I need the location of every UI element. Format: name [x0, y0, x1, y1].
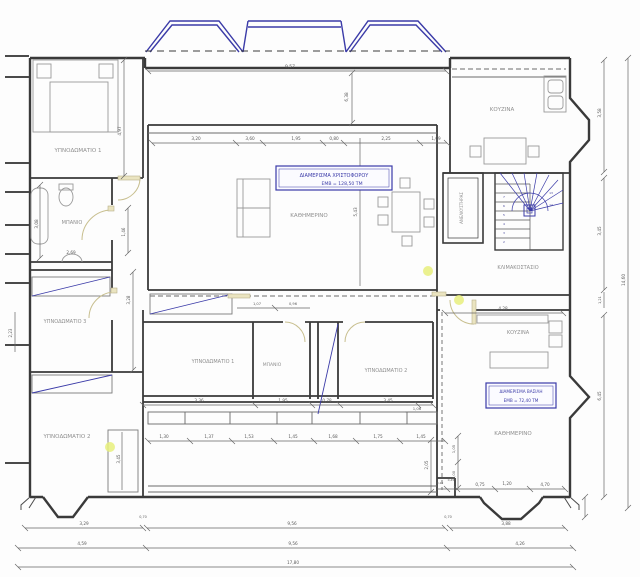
dim-row-mid2-2: 1,53: [244, 434, 254, 439]
interior-walls: [30, 58, 570, 497]
kitchen-top-table: [470, 138, 539, 164]
apartment2-name: ΔΙΑΜΕΡΙΣΜΑ ΒΑΣΙΛΗ: [499, 389, 542, 394]
dim-br-tiny-b: 0,45: [448, 478, 455, 482]
dim-right-small: 1,21: [598, 296, 602, 304]
canopy-middle: [243, 21, 346, 52]
label-bathroom-left: ΜΠΑΝΙΟ: [62, 220, 83, 226]
dim-row-mid2-1: 1,37: [204, 434, 214, 439]
label-bedroom3-left: ΥΠΝΟΔΩΜΑΤΙΟ 3: [43, 319, 87, 325]
left-wall-stubs: [5, 56, 29, 463]
dim-mid-top-a: 1,07: [253, 302, 261, 306]
dim-row-a-4: 3,88: [501, 521, 511, 526]
secondary-lines: [148, 69, 566, 492]
dim-row-mid-1: 1,95: [278, 398, 288, 403]
stair-fan: [500, 173, 563, 216]
label-bedroom1-left: ΥΠΝΟΔΩΜΑΤΙΟ 1: [54, 148, 102, 154]
dim-row-br-1: 1,20: [502, 481, 512, 486]
dim-row-mid2-6: 1,45: [416, 434, 426, 439]
dim-row-mid2-3: 1,45: [288, 434, 298, 439]
dim-right-stair-h: 3,45: [597, 226, 602, 236]
staircase: [495, 173, 563, 250]
floor-plan-drawing: ΥΠΝΟΔΩΜΑΤΙΟ 1 ΜΠΑΝΙΟ ΥΠΝΟΔΩΜΑΤΙΟ 3 ΥΠΝΟΔ…: [0, 0, 640, 577]
apartment-box-1: ΔΙΑΜΕΡΙΣΜΑ ΧΡΙΣΤΟΦΟΡΟΥ ΕΜΒ = 128,50 ΤΜ: [276, 166, 392, 190]
apartment-box-2: ΔΙΑΜΕΡΙΣΜΑ ΒΑΣΙΛΗ ΕΜΒ = 72,40 ΤΜ: [486, 383, 556, 408]
dim-v105: 1,05: [451, 444, 456, 453]
dim-corridor-h: 3,28: [126, 295, 131, 304]
label-bedroom1-mid: ΥΠΝΟΔΩΜΑΤΙΟ 1: [191, 359, 235, 365]
apartment1-area: ΕΜΒ = 128,50 ΤΜ: [321, 181, 362, 187]
step-num-6: 13: [549, 191, 553, 195]
label-living-right: ΚΑΘΗΜΕΡΙΝΟ: [494, 431, 532, 437]
label-kitchen-top: ΚΟΥΖΙΝΑ: [490, 107, 515, 113]
apartment2-area: ΕΜΒ = 72,40 ΤΜ: [504, 398, 539, 403]
kitchen-top-sink: [544, 76, 566, 112]
dim-right-kitchen-h: 3,58: [597, 108, 602, 118]
dim-row-mid-3: 3,45: [383, 398, 393, 403]
step-num-0: 2: [503, 240, 505, 244]
sofa: [237, 179, 270, 237]
corner-ornaments: [21, 497, 579, 510]
step-num-3: 5: [503, 213, 505, 217]
dim-corridor-w: 1,46: [121, 227, 126, 236]
step-num-4: 6: [503, 204, 505, 208]
dim-top-width: 9,57: [285, 64, 295, 70]
step-num-7: 14: [549, 203, 553, 207]
label-living-main: ΚΑΘΗΜΕΡΙΝΟ: [290, 213, 328, 219]
balcony-canopies: [146, 21, 446, 52]
dim-br-tiny-a: 0,10: [437, 481, 444, 485]
door-arc-bedroom2-mid: [345, 322, 365, 342]
dim-veranda-h: 6,38: [344, 92, 349, 102]
bathtub: [31, 188, 48, 244]
dim-bed1-h: 4,97: [117, 126, 122, 136]
apartment1-name: ΔΙΑΜΕΡΙΣΜΑ ΧΡΙΣΤΟΦΟΡΟΥ: [300, 173, 370, 179]
dim-row-mid-2: 0,78: [322, 398, 332, 403]
toilet: [59, 184, 73, 206]
dim-row-b-2: 4,26: [515, 541, 525, 546]
door-arc-bathroom-mid: [285, 322, 305, 342]
bed: [33, 60, 118, 132]
label-bathroom-mid: ΜΠΑΝΙΟ: [263, 362, 282, 368]
label-bedroom2-mid: ΥΠΝΟΔΩΜΑΤΙΟ 2: [364, 368, 408, 374]
dimension-texts: 9,57 6,38 4,97 3,20 3,60 1,95 0,80 2,25 …: [8, 64, 626, 565]
dim-row-a-1: 0,70: [139, 515, 147, 519]
dim-bath-left-w: 2,69: [66, 250, 76, 255]
dim-row-mid2-5: 1,75: [373, 434, 383, 439]
dim-mid-top-b: 0,96: [289, 302, 298, 306]
doors: [82, 178, 474, 342]
dim-step-h: 2,05: [424, 460, 429, 469]
wardrobe: [108, 430, 138, 492]
dim-row-mid2-0: 1,30: [159, 434, 169, 439]
door-arc-bedroom1-left: [118, 178, 140, 200]
dim-row-br-0: 0,75: [475, 482, 485, 487]
dim-row-mid2-4: 1,68: [328, 434, 338, 439]
step-num-1: 3: [503, 231, 505, 235]
dim-bed3-h: 2,23: [8, 328, 13, 337]
step-num-2: 4: [503, 222, 505, 226]
dim-row-a-0: 3,29: [79, 521, 89, 526]
dim-row-top-4: 2,25: [381, 136, 391, 141]
dim-kitchen-right-w: 4,28: [498, 306, 508, 311]
kitchen-right-counter: [477, 315, 562, 368]
floor-plan-sheet: ΥΠΝΟΔΩΜΑΤΙΟ 1 ΜΠΑΝΙΟ ΥΠΝΟΔΩΜΑΤΙΟ 3 ΥΠΝΟΔ…: [0, 0, 640, 577]
dim-closet-h: 3,45: [116, 454, 121, 463]
dim-row-top-2: 1,95: [291, 136, 301, 141]
label-stairwell: ΚΛΙΜΑΚΟΣΤΑΣΙΟ: [497, 265, 538, 271]
dim-mid-small: 1,06: [413, 406, 422, 411]
dim-bath-left-h: 3,08: [34, 219, 39, 229]
dim-row-b-0: 4,59: [77, 541, 87, 546]
dim-right-living-h: 6,45: [597, 391, 602, 401]
dim-right-total: 14,60: [621, 274, 626, 286]
south-window-band: [148, 412, 437, 424]
label-bedroom2-left: ΥΠΝΟΔΩΜΑΤΙΟ 2: [43, 434, 91, 440]
dim-row-a-3: 0,70: [444, 515, 452, 519]
dim-row-top-5: 1,09: [431, 136, 441, 141]
label-kitchen-right: ΚΟΥΖΙΝΑ: [507, 330, 530, 336]
door-arc-bathroom-left: [82, 210, 112, 240]
dim-row-b-1: 9,56: [288, 541, 298, 546]
dim-row-mid-0: 3,36: [194, 398, 204, 403]
dim-total-w: 17,80: [287, 560, 299, 565]
dim-row-top-3: 0,80: [329, 136, 339, 141]
dim-row-br-2: 4,70: [540, 482, 550, 487]
label-elevator: ΑΝΕΛΚΥΣΤΗΡΑΣ: [459, 192, 464, 224]
closets: [32, 277, 338, 492]
dim-row-top-1: 3,60: [245, 136, 255, 141]
dim-row-top-0: 3,20: [191, 136, 201, 141]
step-num-5: 7: [503, 195, 505, 199]
basin: [62, 254, 82, 262]
dim-living-h: 5,43: [353, 207, 358, 217]
dim-row-a-2: 9,56: [287, 521, 297, 526]
